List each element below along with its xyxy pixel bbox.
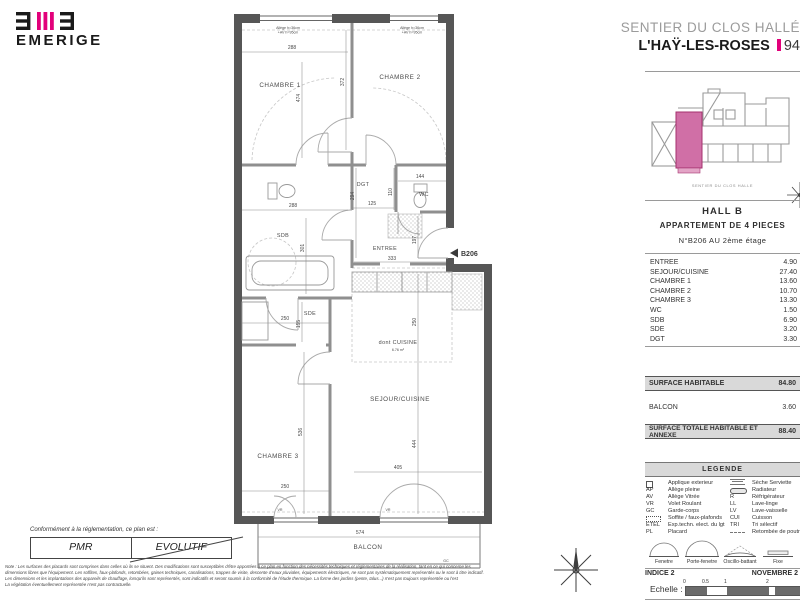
table-row: CHAMBRE 313.30 [650, 296, 797, 306]
site-plan-caption: SENTIER DU CLOS HALLE [645, 183, 800, 188]
highlighted-unit [676, 112, 702, 168]
room-label-wc: WC [419, 192, 429, 198]
etel-zone [452, 274, 482, 310]
svg-text:Allège h=36cm: Allège h=36cm [400, 26, 424, 30]
table-row: WC1.50 [650, 306, 797, 316]
disclaimer-notes: Note : Les surfaces des placards sont co… [5, 564, 640, 588]
department-number: 94 [784, 38, 800, 54]
divider [645, 346, 800, 347]
surface-habitable-value: 84.80 [778, 380, 796, 387]
legend: Applique exterieur APAllège pleine AVAll… [646, 480, 800, 536]
vr-label: VR [278, 508, 283, 512]
room-area: 3.30 [783, 335, 797, 345]
room-label-dgt: DGT [357, 182, 370, 188]
svg-text:125: 125 [368, 201, 377, 207]
room-area: 4.90 [783, 258, 797, 268]
project-header: SENTIER DU CLOS HALLÉ L'HAŸ-LES-ROSES94 [540, 20, 800, 54]
svg-text:250: 250 [281, 484, 290, 490]
project-name: SENTIER DU CLOS HALLÉ [540, 20, 800, 35]
unit-marker: B206 [450, 249, 478, 259]
legend-item: AVAllège Vitrée [646, 494, 730, 501]
evolutif-cell: EVOLUTIF [131, 538, 232, 558]
unit-marker-label: B206 [461, 251, 478, 258]
window-type: Oscillo-battant [721, 540, 759, 565]
legend-item: LLLave-linge [730, 501, 800, 508]
legend-item: RRéfrigérateur [730, 494, 800, 501]
balcon-label: BALCON [649, 404, 678, 411]
legend-title: LEGENDE [645, 462, 800, 477]
legend-item: CUICuisson [730, 515, 800, 522]
room-schedule: ENTREE4.90 SEJOUR/CUISINE27.40 CHAMBRE 1… [650, 258, 797, 344]
brand-name: EMERIGE [16, 32, 116, 49]
legend-item: Soffite / faux-plafonds [646, 515, 730, 522]
svg-text:474: 474 [296, 94, 302, 103]
svg-text:197: 197 [412, 236, 418, 245]
svg-text:301: 301 [300, 244, 306, 253]
room-name: SDB [650, 316, 664, 326]
gc-label: GC [443, 559, 449, 563]
room-area: 13.60 [779, 277, 797, 287]
balcon-row: BALCON 3.60 [645, 404, 800, 411]
room-label-chambre3: CHAMBRE 3 [257, 453, 298, 460]
date-label: NOVEMBRE 2 [752, 570, 798, 577]
divider [645, 568, 800, 569]
divider [645, 253, 800, 254]
svg-text:250: 250 [281, 316, 290, 322]
room-area: 3.20 [783, 325, 797, 335]
seche-serviette-icon [730, 479, 745, 485]
surface-habitable-label: SURFACE HABITABLE [649, 380, 724, 387]
svg-text:155: 155 [296, 320, 302, 329]
emerige-logo-icon [16, 12, 74, 30]
conformity-table: PMR EVOLUTIF [30, 537, 232, 559]
city-name: L'HAŸ-LES-ROSES [638, 38, 770, 54]
conformity-note: Conformément à la réglementation, ce pla… [30, 527, 158, 533]
apartment-type: APPARTEMENT DE 4 PIECES [645, 221, 800, 230]
unit-marker-arrow-icon [450, 249, 458, 258]
surface-totale-value: 88.40 [778, 428, 796, 435]
legend-item: Retombée de poutre [730, 529, 800, 536]
svg-text:294: 294 [350, 192, 356, 201]
fenetre-icon [649, 540, 679, 558]
pmr-cell: PMR [31, 538, 131, 558]
legend-item: APAllège pleine [646, 487, 730, 494]
project-location: L'HAŸ-LES-ROSES94 [540, 38, 800, 54]
window-types: Fenetre Porte-fenetre Oscillo-battant Fi… [645, 540, 800, 565]
divider [645, 71, 800, 72]
svg-text:288: 288 [288, 45, 297, 51]
room-name: CHAMBRE 1 [650, 277, 691, 287]
room-area: 10.70 [779, 287, 797, 297]
floor-plan-sheet: EMERIGE SENTIER DU CLOS HALLÉ L'HAŸ-LES-… [0, 0, 800, 600]
svg-text:+AV h=95cm: +AV h=95cm [402, 31, 423, 35]
room-name: CHAMBRE 3 [650, 296, 691, 306]
svg-text:144: 144 [416, 174, 425, 180]
echelle-label: Echelle : [650, 584, 683, 594]
room-label-chambre1: CHAMBRE 1 [259, 82, 300, 89]
surface-totale-band: SURFACE TOTALE HABITABLE ET ANNEXE 88.40 [645, 424, 800, 439]
cuisine-area-note: 6.76 m² [392, 348, 405, 352]
note-line: La végétation éventuellement représentée… [5, 582, 640, 588]
legend-item: Applique exterieur [646, 480, 730, 487]
room-label-sejour: SEJOUR/CUISINE [370, 396, 430, 403]
table-row: CHAMBRE 113.60 [650, 277, 797, 287]
scale-bar: 0 0.5 1 2 [685, 579, 800, 597]
room-label-entree: ENTREE [373, 246, 397, 252]
table-row: SDE3.20 [650, 325, 797, 335]
svg-text:Allège h=36cm: Allège h=36cm [276, 26, 300, 30]
room-name: ENTREE [650, 258, 678, 268]
svg-text:372: 372 [340, 78, 346, 87]
balcon-value: 3.60 [782, 404, 796, 411]
legend-item: LVLave-vaisselle [730, 508, 800, 515]
kitchen-counter-zone [352, 272, 452, 292]
emerige-logo: EMERIGE [16, 12, 116, 49]
room-label-cuisine: dont CUISINE [379, 340, 418, 346]
hall-title: HALL B [645, 206, 800, 217]
window-type: Fenetre [645, 540, 683, 565]
room-area: 1.50 [783, 306, 797, 316]
placard-zone [388, 214, 422, 238]
table-row: ENTREE4.90 [650, 258, 797, 268]
room-area: 27.40 [779, 268, 797, 278]
exterior-walls [234, 14, 492, 524]
windows [260, 16, 448, 522]
room-label-sdb: SDB [277, 233, 289, 239]
svg-text:110: 110 [388, 188, 394, 196]
retombee-icon [730, 532, 745, 533]
svg-text:250: 250 [412, 318, 418, 327]
apartment-floor-plan: 288 474 372 288 301 294 125 144 110 333 … [225, 0, 500, 600]
legend-item: VRVolet Roulant [646, 501, 730, 508]
accent-bar [777, 39, 781, 51]
surface-totale-label: SURFACE TOTALE HABITABLE ET ANNEXE [649, 425, 778, 439]
legend-item: GCGarde-corps [646, 508, 730, 515]
svg-text:444: 444 [412, 440, 418, 449]
indice-label: INDICE 2 [645, 570, 675, 577]
fixe-icon [763, 540, 793, 558]
unit-number: N°B206 AU 2ème étage [645, 236, 800, 245]
porte-fenetre-icon [685, 540, 719, 558]
room-label-chambre2: CHAMBRE 2 [379, 74, 420, 81]
svg-text:333: 333 [388, 256, 397, 262]
vr-label: VR [386, 508, 391, 512]
room-name: DGT [650, 335, 665, 345]
room-label-sde: SDE [304, 311, 316, 317]
table-row: DGT3.30 [650, 335, 797, 345]
room-name: CHAMBRE 2 [650, 287, 691, 297]
legend-item: TRITri sélectif [730, 522, 800, 529]
oscillo-battant-icon [724, 540, 756, 558]
legend-item: PLPlacard [646, 529, 730, 536]
table-row: CHAMBRE 210.70 [650, 287, 797, 297]
site-plan-thumbnail [648, 86, 798, 180]
room-name: SDE [650, 325, 664, 335]
legend-item: ETELExp.techn. elect. du lgt [646, 522, 730, 529]
legend-left-column: Applique exterieur APAllège pleine AVAll… [646, 480, 730, 536]
legend-item: Sèche Serviette [730, 480, 800, 487]
svg-text:+AV h=95cm: +AV h=95cm [278, 31, 299, 35]
surface-habitable-band: SURFACE HABITABLE 84.80 [645, 376, 800, 391]
room-label-balcon: BALCON [354, 544, 383, 551]
room-name: SEJOUR/CUISINE [650, 268, 709, 278]
window-type: Porte-fenetre [683, 540, 721, 565]
svg-text:288: 288 [289, 203, 298, 209]
window-type: Fixe [759, 540, 797, 565]
table-row: SEJOUR/CUISINE27.40 [650, 268, 797, 278]
svg-text:574: 574 [356, 530, 365, 536]
svg-text:536: 536 [298, 428, 304, 437]
legend-right-column: Sèche Serviette Radiateur RRéfrigérateur… [730, 480, 800, 536]
legend-item: Radiateur [730, 487, 800, 494]
room-name: WC [650, 306, 662, 316]
revision-row: INDICE 2 NOVEMBRE 2 [645, 570, 798, 577]
room-area: 6.90 [783, 316, 797, 326]
divider [645, 200, 800, 201]
table-row: SDB6.90 [650, 316, 797, 326]
room-area: 13.30 [779, 296, 797, 306]
svg-text:405: 405 [394, 465, 403, 471]
